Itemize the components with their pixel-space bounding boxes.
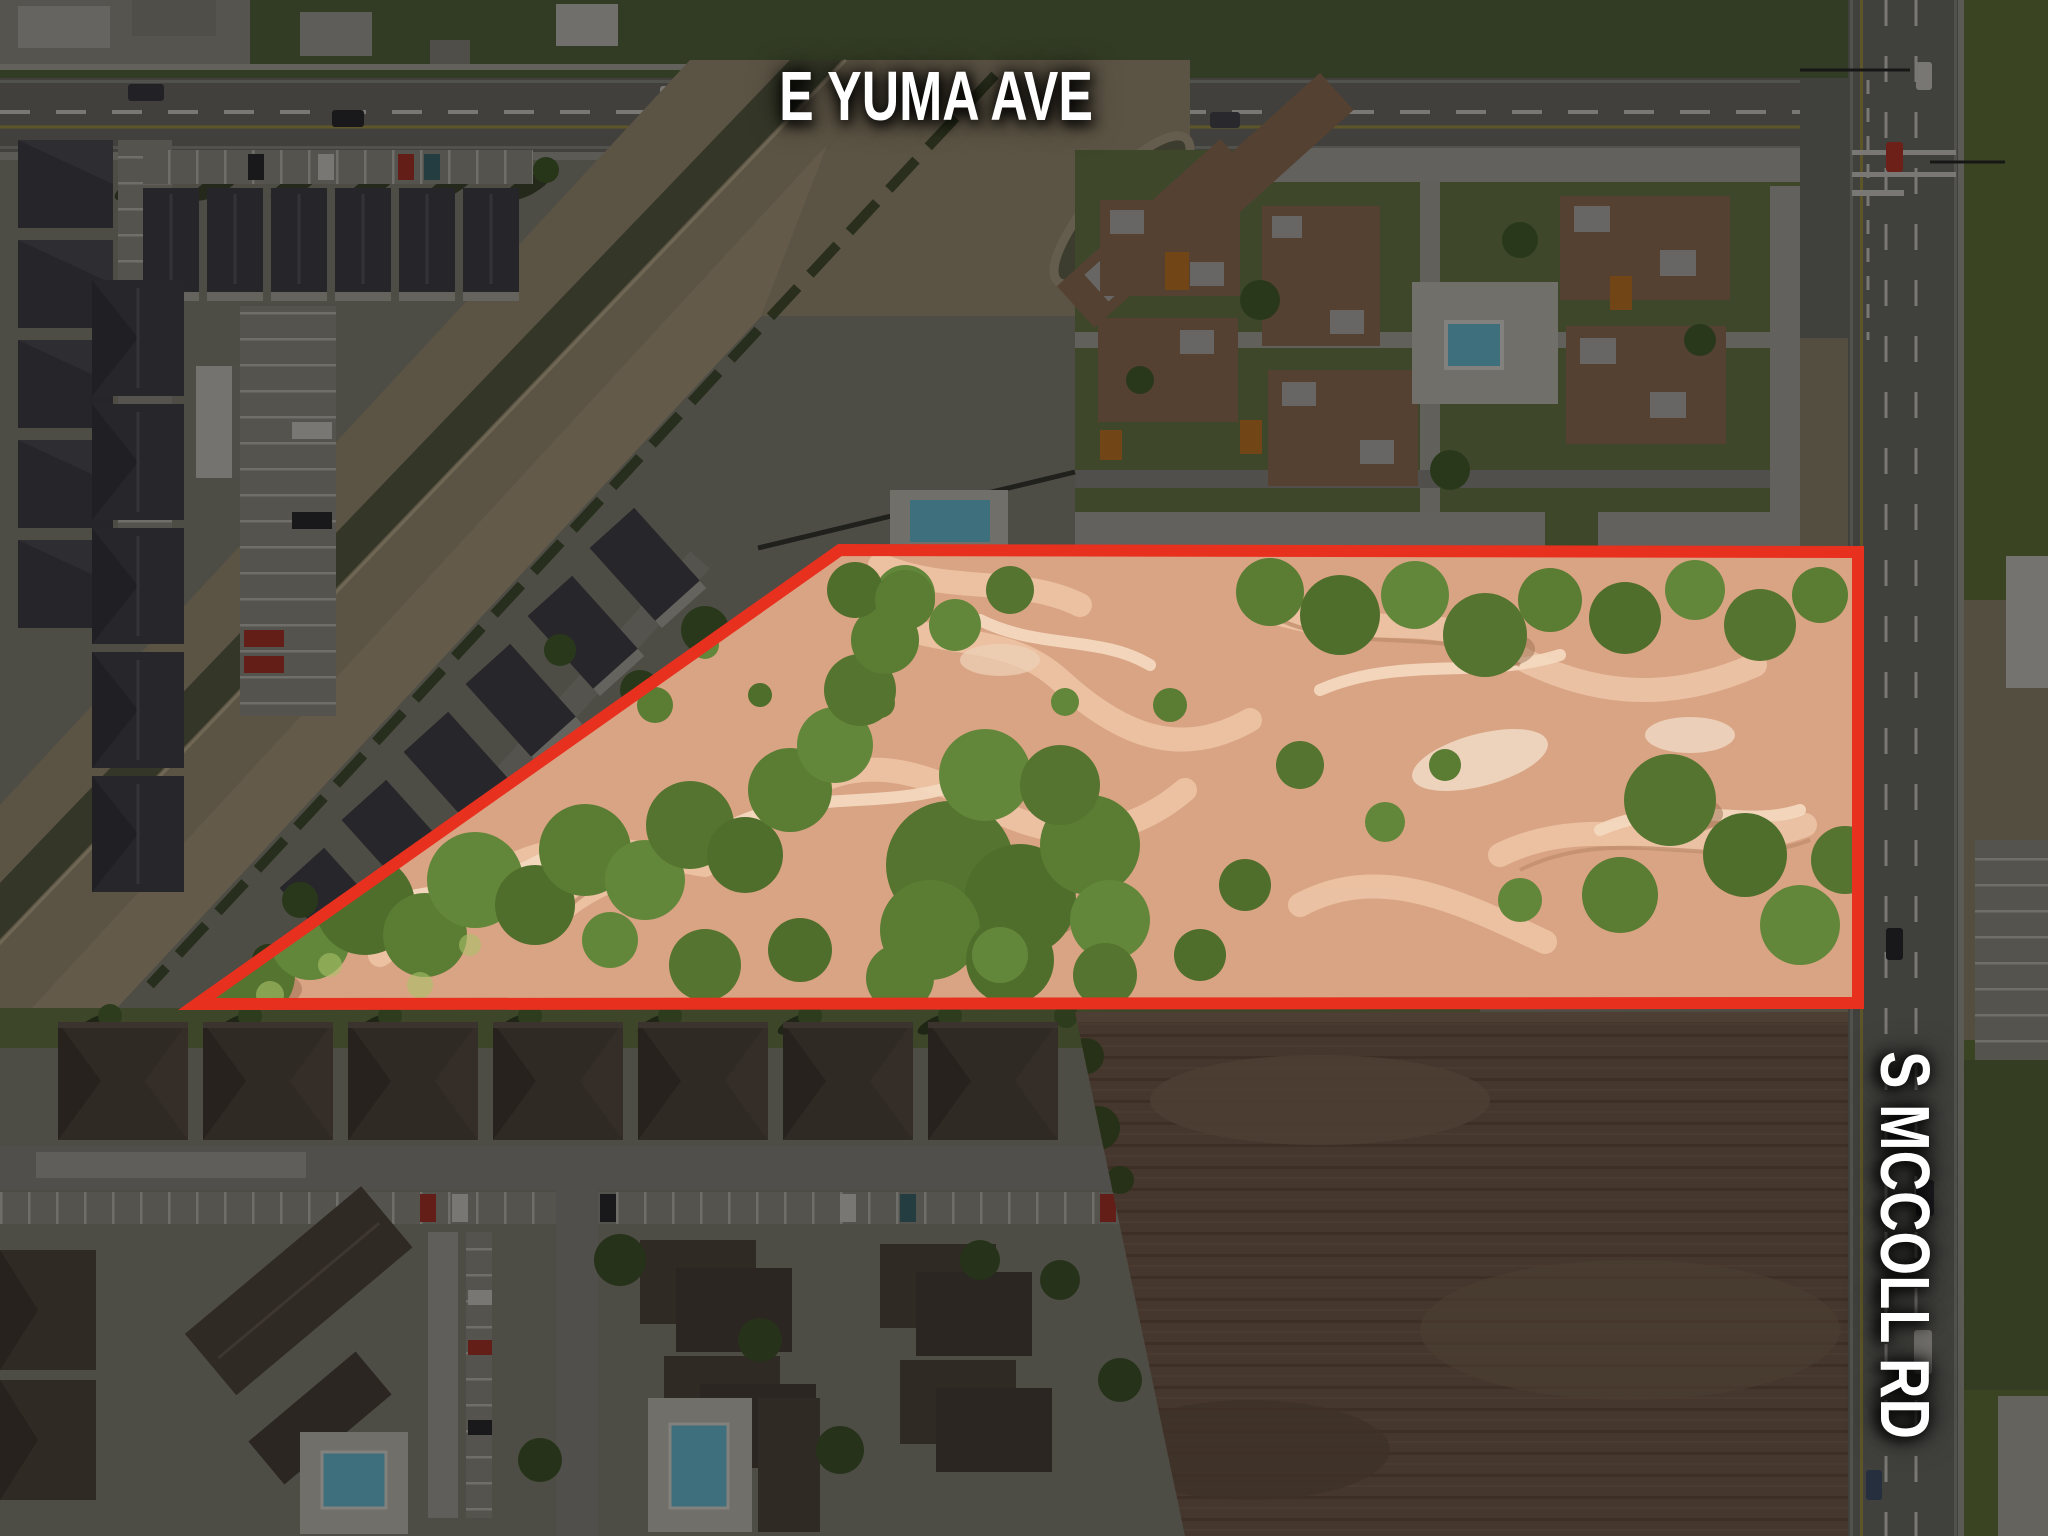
street-label-s-mccoll-rd: S MCCOLL RD: [1870, 1051, 1940, 1439]
aerial-scene: [0, 0, 2048, 1536]
aerial-map: E YUMA AVE S MCCOLL RD: [0, 0, 2048, 1536]
street-label-e-yuma-ave: E YUMA AVE: [779, 61, 1093, 131]
